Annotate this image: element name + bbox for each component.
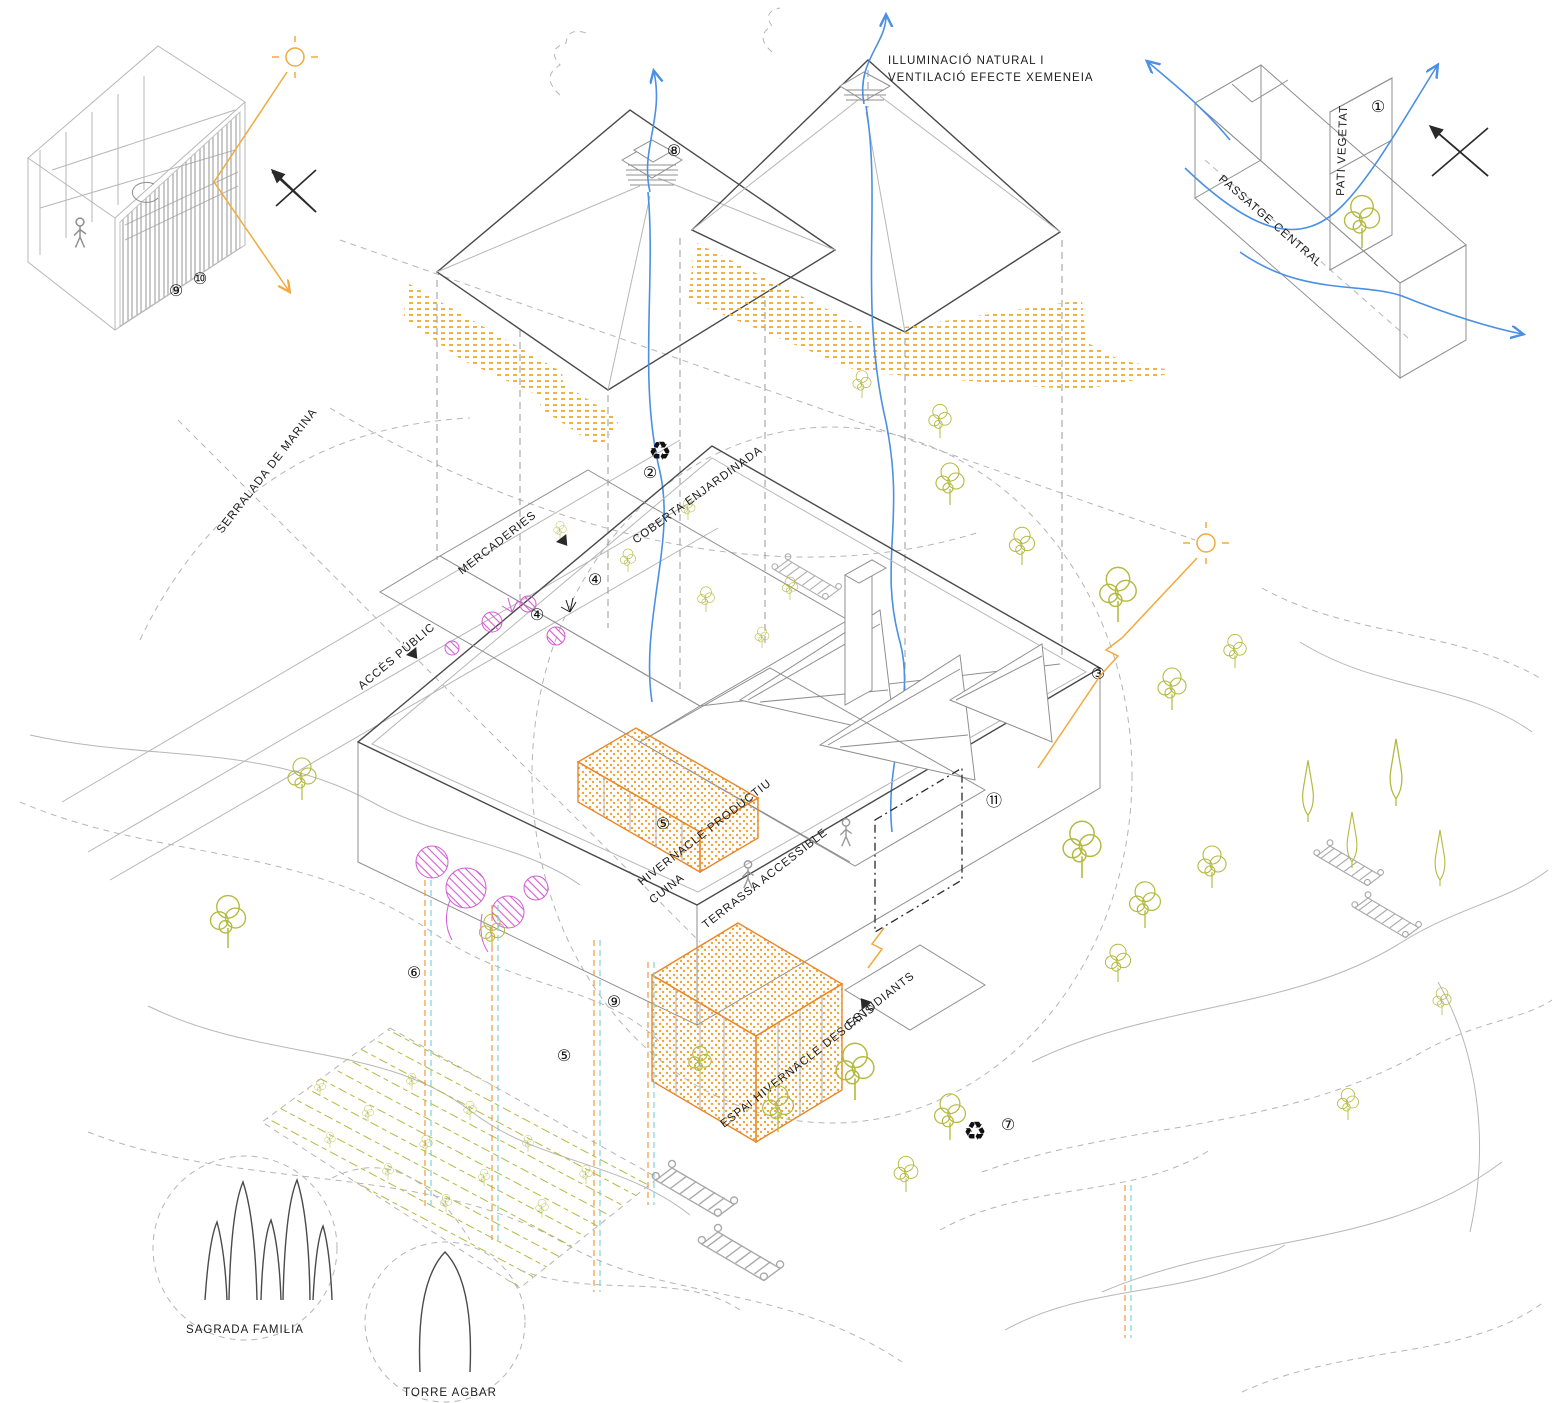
callout-9: ⑨ [607,992,621,1011]
person-figure-inset [74,218,86,247]
magenta-roof-flowers [445,596,565,655]
passage-bar: PASSATGE CENTRAL PATI VEGETAT ① [1148,62,1522,378]
label-sagrada: SAGRADA FAMILIA [186,1324,304,1336]
callout-7: ⑦ [1001,1115,1015,1134]
label-serralada: SERRALADA DE MARINA [215,406,320,536]
exploded-axonometric-diagram: ⑨ ⑩ ILLUMINACIÓ NATURAL I VENTILACIÓ EFE… [0,0,1554,1403]
label-illuminacio-2: VENTILACIÓ EFECTE XEMENEIA [888,71,1094,84]
sun-icon-right [1183,522,1229,564]
plant-symbol [561,598,576,612]
north-arrow-icon-right [1430,126,1488,176]
facade-detail-inset: ⑨ ⑩ [28,46,245,330]
callout-1: ① [1371,97,1385,116]
stairs-south [652,1160,783,1280]
callout-2: ② [643,463,657,482]
callout-10-inset: ⑩ [193,269,207,288]
label-torre-agbar: TORRE AGBAR [403,1387,497,1399]
north-arrow-icon [272,170,316,212]
mercaderies-arrow [556,534,572,550]
label-pati-vegetat: PATI VEGETAT [1335,105,1350,196]
courtyard-tree [1345,196,1380,249]
roof-garden-strip [380,556,700,742]
sun-icon [272,36,318,78]
callout-6: ⑥ [407,963,421,982]
callout-4a: ④ [588,570,602,589]
callout-5b: ⑤ [557,1046,571,1065]
sagrada-familia-vignette: SAGRADA FAMILIA [153,1156,337,1340]
terrain-contours [20,240,1552,1392]
lightning-bolt-icon [868,928,884,968]
callout-11: ⑪ [986,791,1002,810]
label-illuminacio-1: ILLUMINACIÓ NATURAL I [888,54,1044,67]
callout-8: ⑧ [667,141,681,160]
callout-5a: ⑤ [656,814,670,833]
label-passatge-central: PASSATGE CENTRAL [1216,173,1324,269]
diagram-canvas: ⑨ ⑩ ILLUMINACIÓ NATURAL I VENTILACIÓ EFE… [0,0,1554,1403]
greenhouse-productive [578,728,758,872]
recycle-icon-ground: ♻ [963,1117,986,1147]
crop-field [262,1028,658,1288]
label-mercaderies: MERCADERIES [456,509,539,577]
callout-4b: ④ [530,605,544,624]
callout-9-inset: ⑨ [169,281,183,300]
stairs-east [1314,840,1422,938]
